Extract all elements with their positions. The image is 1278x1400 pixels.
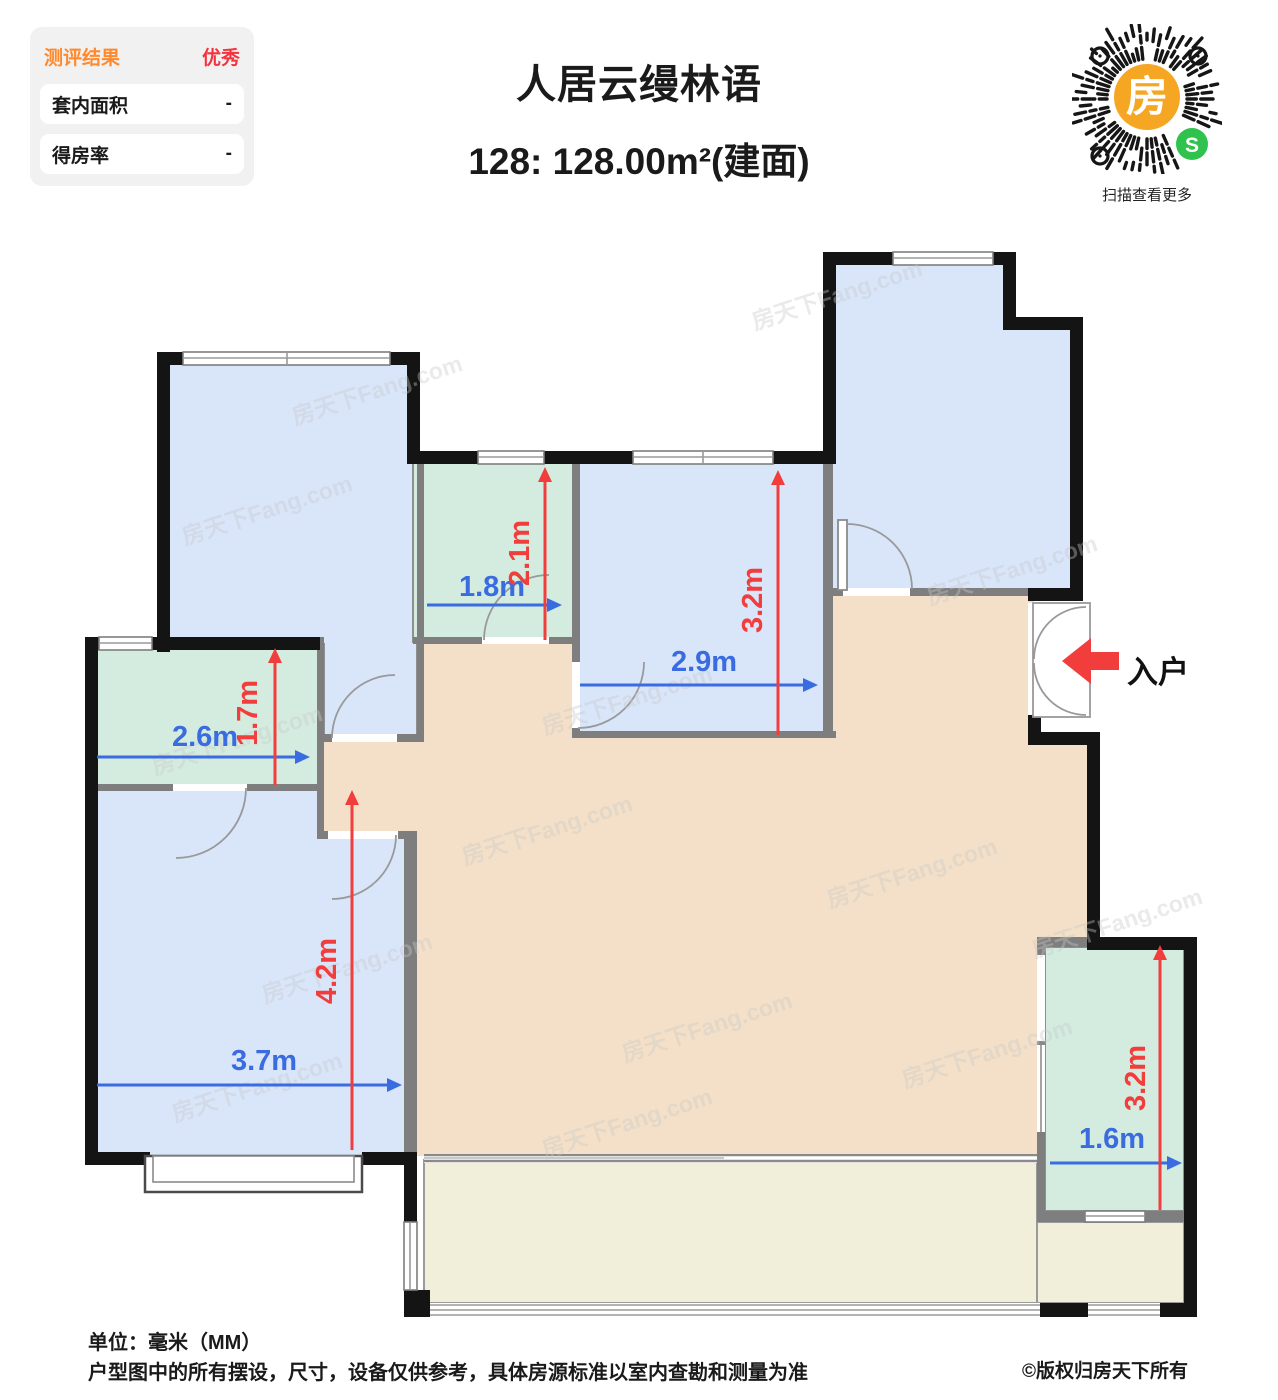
dim-bedroom-mid-width: 2.9m (671, 646, 737, 678)
dim-bath-left-depth: 1.7m (232, 680, 264, 746)
window-bathroom-top (478, 451, 544, 464)
window-bedroom-top-left (183, 352, 390, 365)
bay-window (145, 1156, 362, 1192)
qr-caption: 扫描查看更多 (1064, 184, 1230, 205)
room-top-right (830, 258, 1077, 594)
dim-bath-top-depth: 2.1m (504, 520, 536, 586)
window-balcony-left (404, 1222, 417, 1290)
qr-center-glyph: 房 (1126, 73, 1168, 120)
dim-bath-left-width: 2.6m (172, 721, 238, 753)
dim-bath-right-depth: 3.2m (1120, 1045, 1152, 1111)
dim-bedroom-bottom-width: 3.7m (231, 1045, 297, 1077)
footer-disclaimer: 户型图中的所有摆设，尺寸，设备仅供参考，具体房源标准以室内查勘和测量为准 (88, 1356, 808, 1385)
dim-bedroom-mid-depth: 3.2m (737, 567, 769, 633)
floor-plan: 房天下Fang.com 房天下Fang.com 房天下Fang.com 房天下F… (0, 0, 1278, 1400)
wechat-icon-glyph: S (1185, 134, 1199, 157)
sliding-door-living-balcony (424, 1153, 1037, 1163)
window-bedroom-middle (633, 451, 773, 464)
entrance-label: 入户 (1127, 655, 1189, 690)
qr-code-graphic: 房 S (1072, 24, 1222, 174)
room-fills (91, 258, 1184, 1303)
dim-bedroom-bottom-depth: 4.2m (311, 938, 343, 1004)
qr-code: 房 S (1072, 24, 1222, 174)
room-bathroom-top (413, 457, 578, 642)
room-bathroom-right (1045, 947, 1184, 1211)
footer-unit-note: 单位：毫米（MM） (88, 1326, 261, 1355)
footer-copyright: ©版权归房天下所有 (1022, 1356, 1188, 1383)
window-bathroom-right-bottom (1085, 1211, 1145, 1222)
window-bathroom-left (99, 637, 152, 650)
dim-bath-right-width: 1.6m (1079, 1123, 1145, 1155)
